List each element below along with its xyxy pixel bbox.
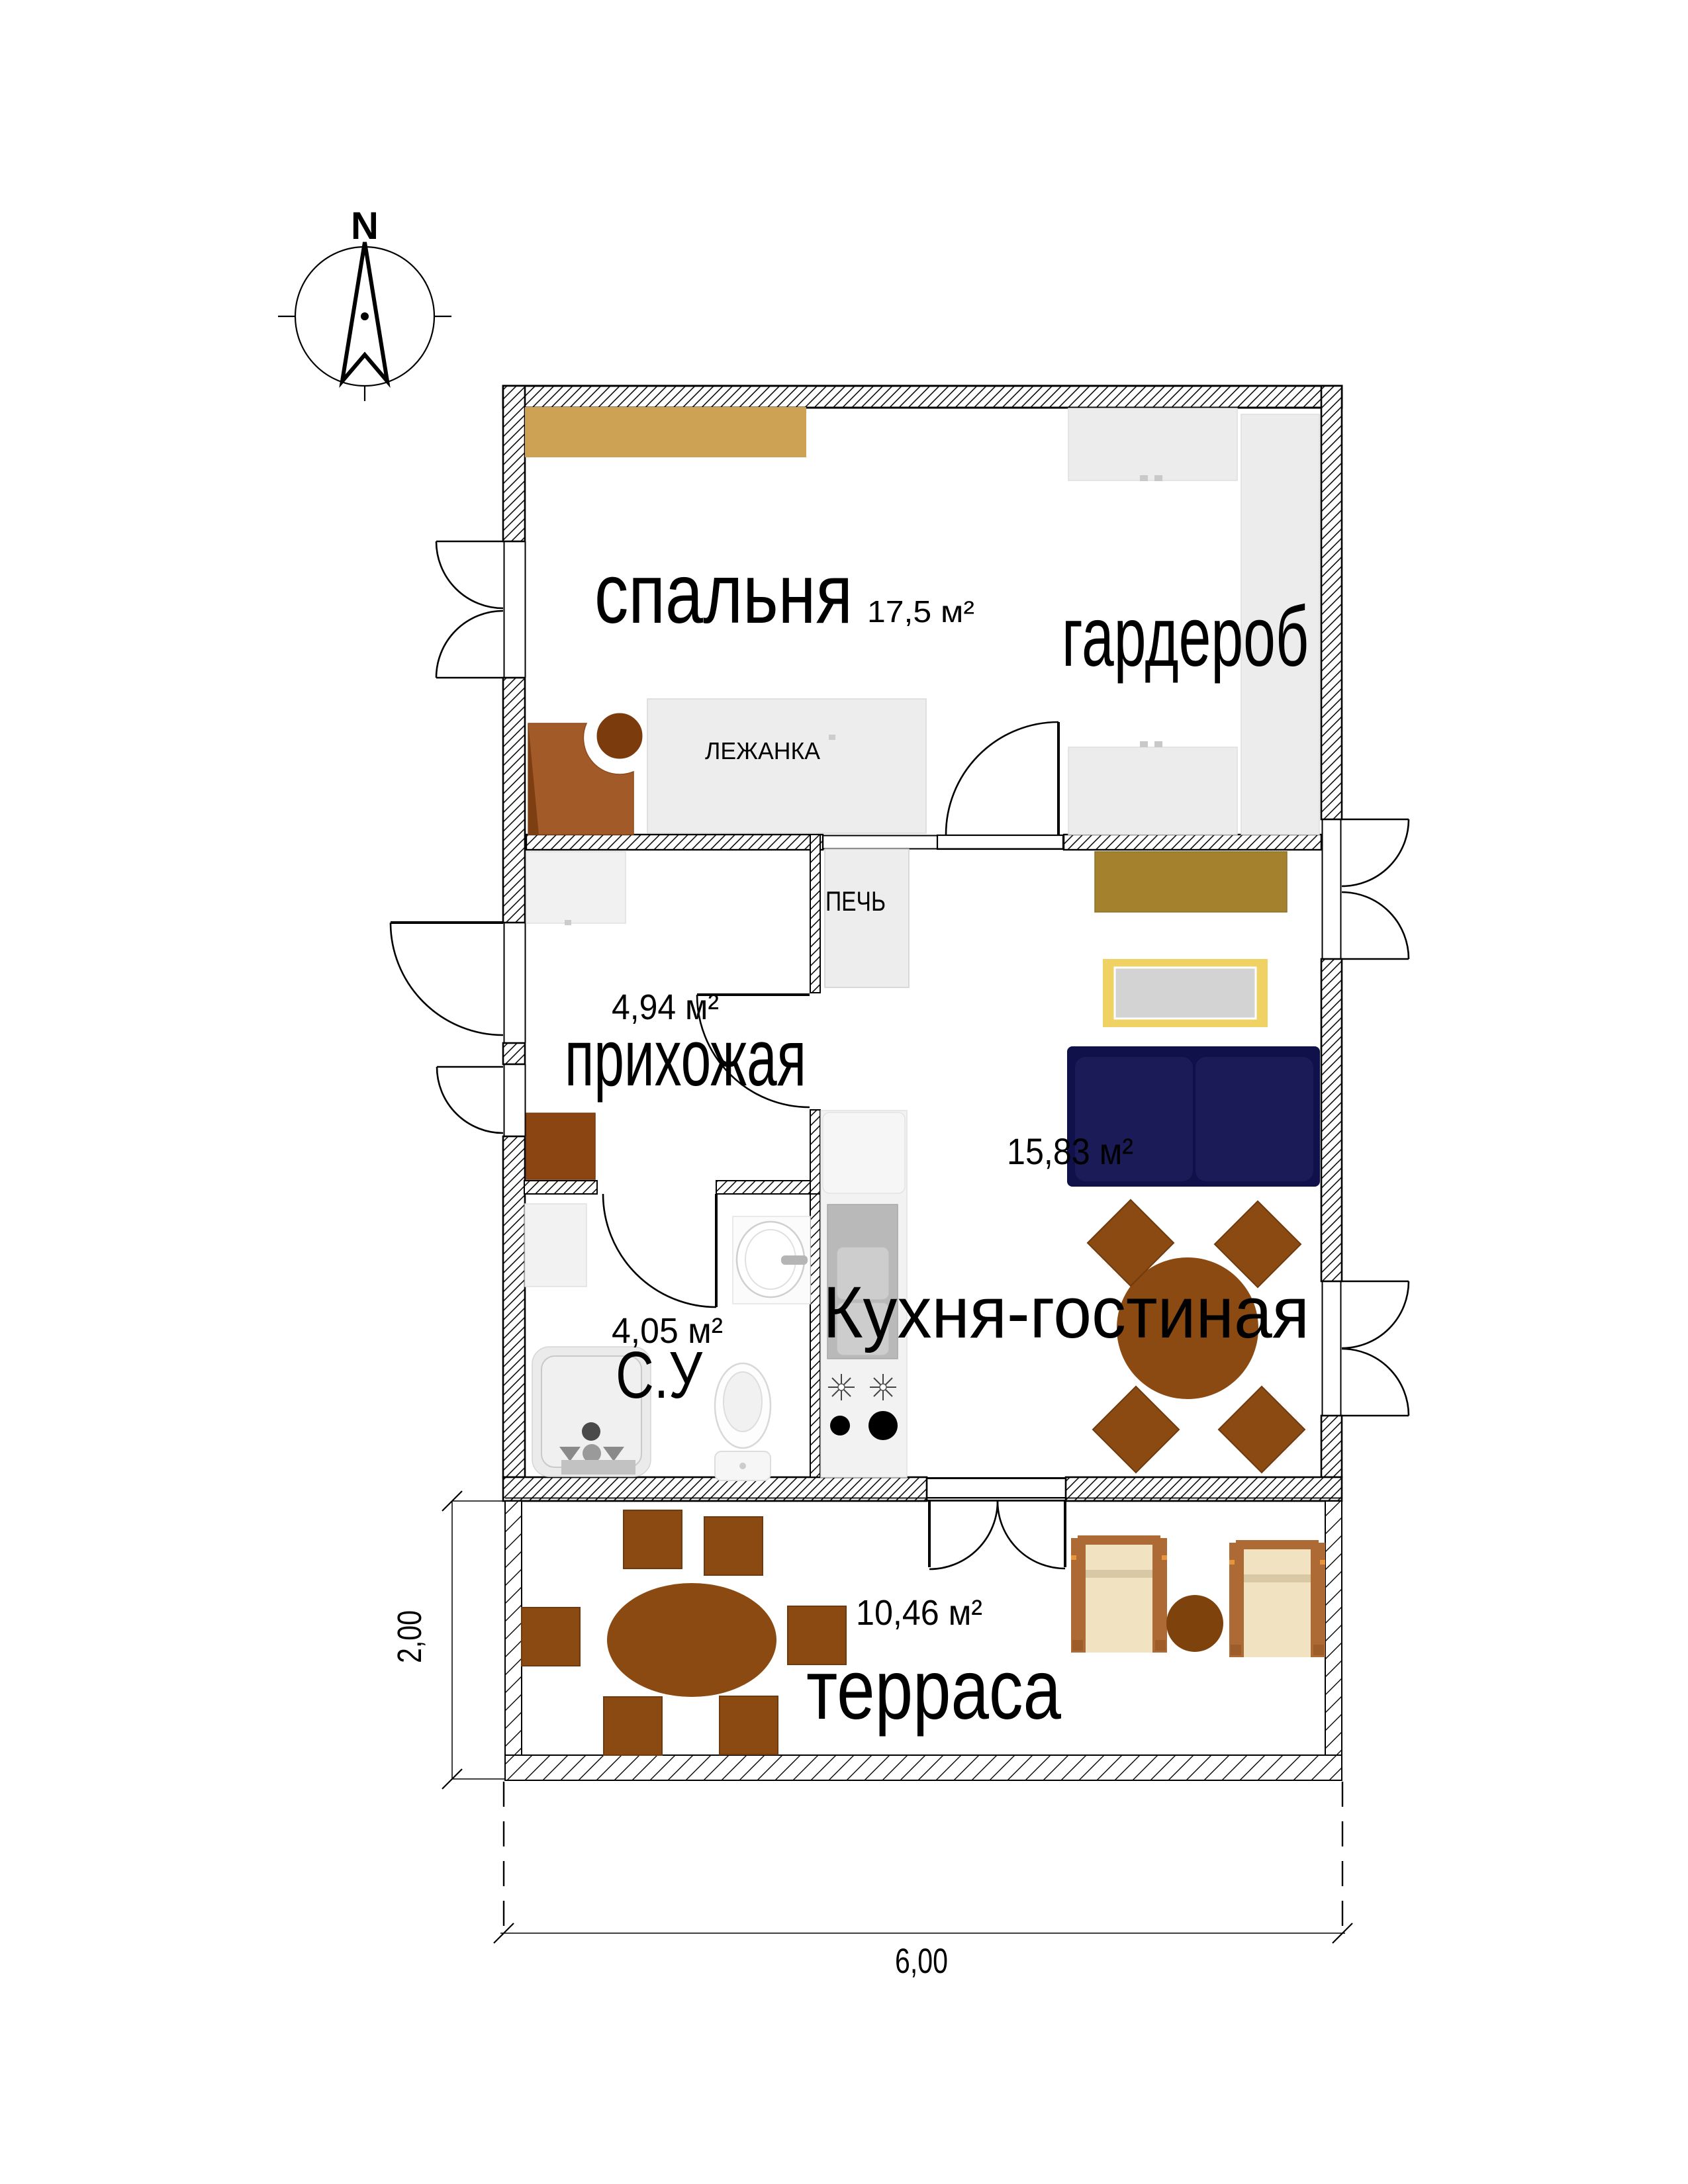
svg-text:ЛЕЖАНКА: ЛЕЖАНКА (705, 737, 820, 764)
svg-text:15,83 м²: 15,83 м² (1007, 1130, 1133, 1172)
svg-text:N: N (351, 205, 379, 248)
svg-text:спальня: спальня (594, 547, 853, 641)
svg-text:2,00: 2,00 (391, 1610, 428, 1663)
svg-text:С.У: С.У (616, 1338, 703, 1412)
svg-text:6,00: 6,00 (895, 1942, 948, 1981)
svg-text:10,46 м²: 10,46 м² (856, 1593, 982, 1633)
svg-text:терраса: терраса (806, 1643, 1062, 1737)
svg-text:Кухня-гостиная: Кухня-гостиная (823, 1272, 1309, 1353)
svg-text:ПЕЧЬ: ПЕЧЬ (825, 886, 886, 917)
svg-text:прихожая: прихожая (565, 1013, 806, 1103)
svg-text:17,5 м²: 17,5 м² (867, 594, 974, 629)
svg-text:гардероб: гардероб (1062, 590, 1309, 684)
